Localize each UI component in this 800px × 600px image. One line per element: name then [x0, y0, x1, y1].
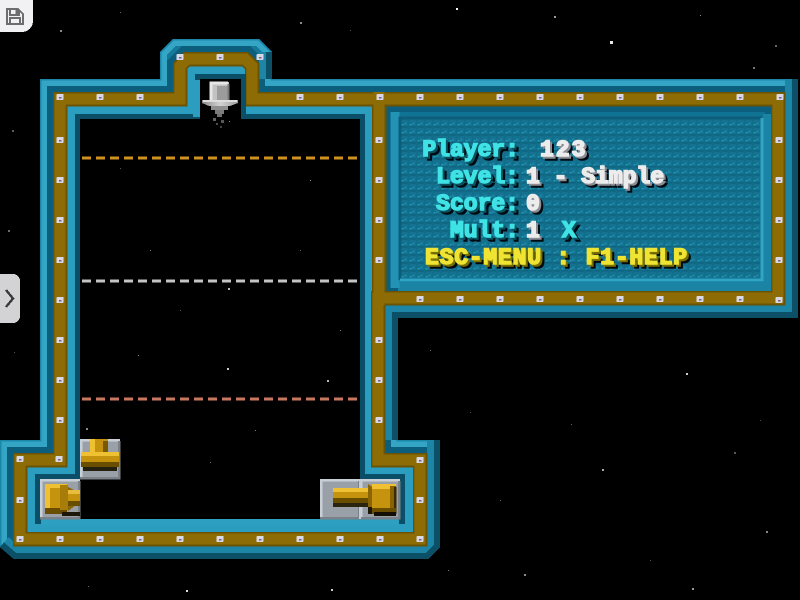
svg-text:Mult:: Mult:	[450, 218, 519, 244]
svg-text:123: 123	[540, 137, 587, 163]
svg-text:1: 1	[526, 218, 540, 244]
svg-text:X: X	[562, 218, 576, 244]
svg-text:Player:: Player:	[422, 137, 519, 163]
svg-text:Score:: Score:	[436, 191, 519, 217]
svg-text:ESC-MENU : F1-HELP: ESC-MENU : F1-HELP	[425, 245, 688, 271]
svg-text:Level:: Level:	[436, 164, 519, 190]
svg-text:0: 0	[526, 191, 540, 217]
svg-text:1 - Simple: 1 - Simple	[526, 164, 664, 190]
